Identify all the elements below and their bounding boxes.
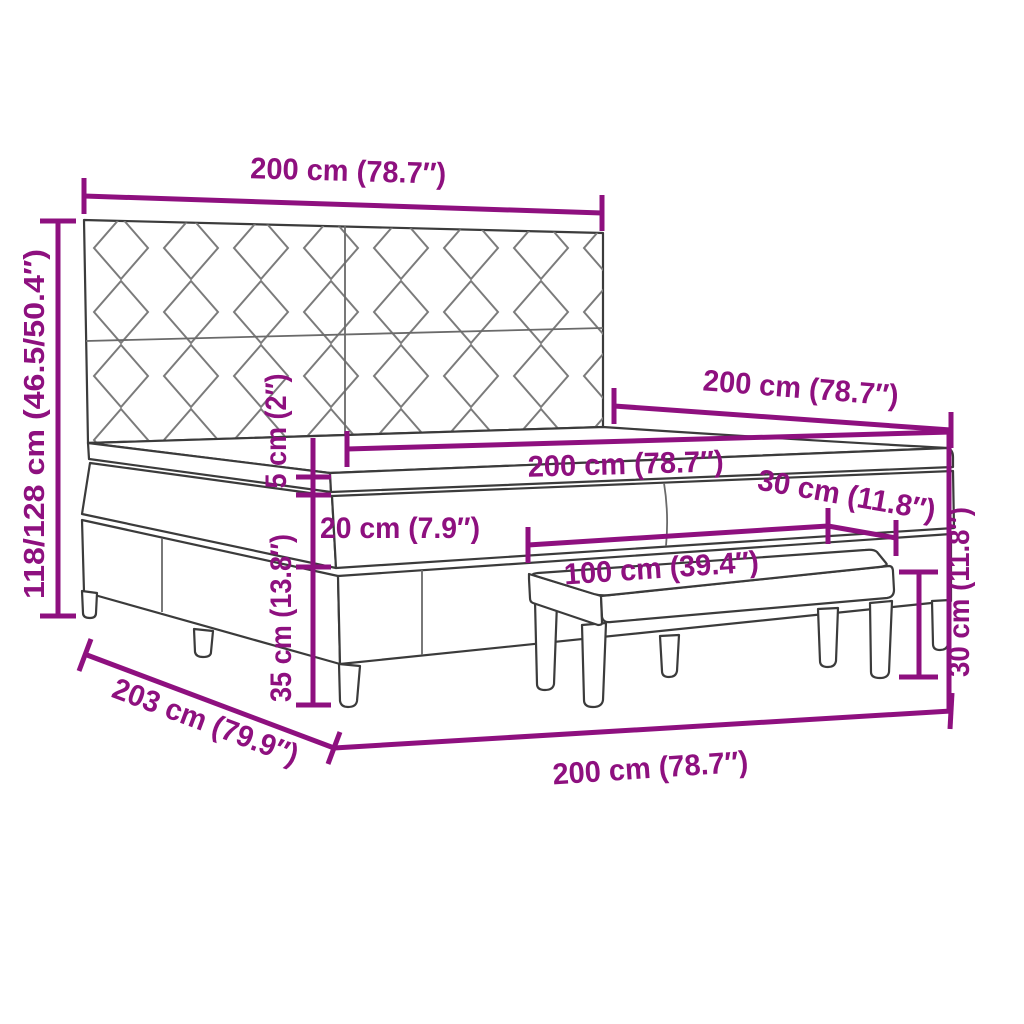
dim-tick <box>950 693 952 729</box>
diagram-canvas: 200 cm (78.7″) 118/128 cm (46.5/50.4″) 2… <box>0 0 1024 1024</box>
dim-label-topper-thickness: 5 cm (2″) <box>260 374 293 489</box>
bed-leg <box>339 664 360 707</box>
dim-label-headboard-width: 200 cm (78.7″) <box>250 152 447 190</box>
bench-leg <box>535 601 557 690</box>
bench-leg <box>870 601 892 678</box>
dim-label-mattress-width: 200 cm (78.7″) <box>527 445 724 483</box>
dim-label-mattress-thickness: 20 cm (7.9″) <box>320 512 480 545</box>
bench-leg <box>818 608 838 667</box>
dim-label-base-height: 35 cm (13.8″) <box>265 534 298 702</box>
dimension-diagram: 200 cm (78.7″) 118/128 cm (46.5/50.4″) 2… <box>0 0 1024 1024</box>
headboard <box>84 216 606 446</box>
bed-leg <box>194 629 213 657</box>
bed-leg <box>82 591 97 618</box>
dim-label-overall-height: 118/128 cm (46.5/50.4″) <box>19 249 51 599</box>
dim-label-bench-height: 30 cm (11.8″) <box>943 507 976 677</box>
bench-leg <box>660 635 679 677</box>
bench-leg <box>582 623 606 707</box>
